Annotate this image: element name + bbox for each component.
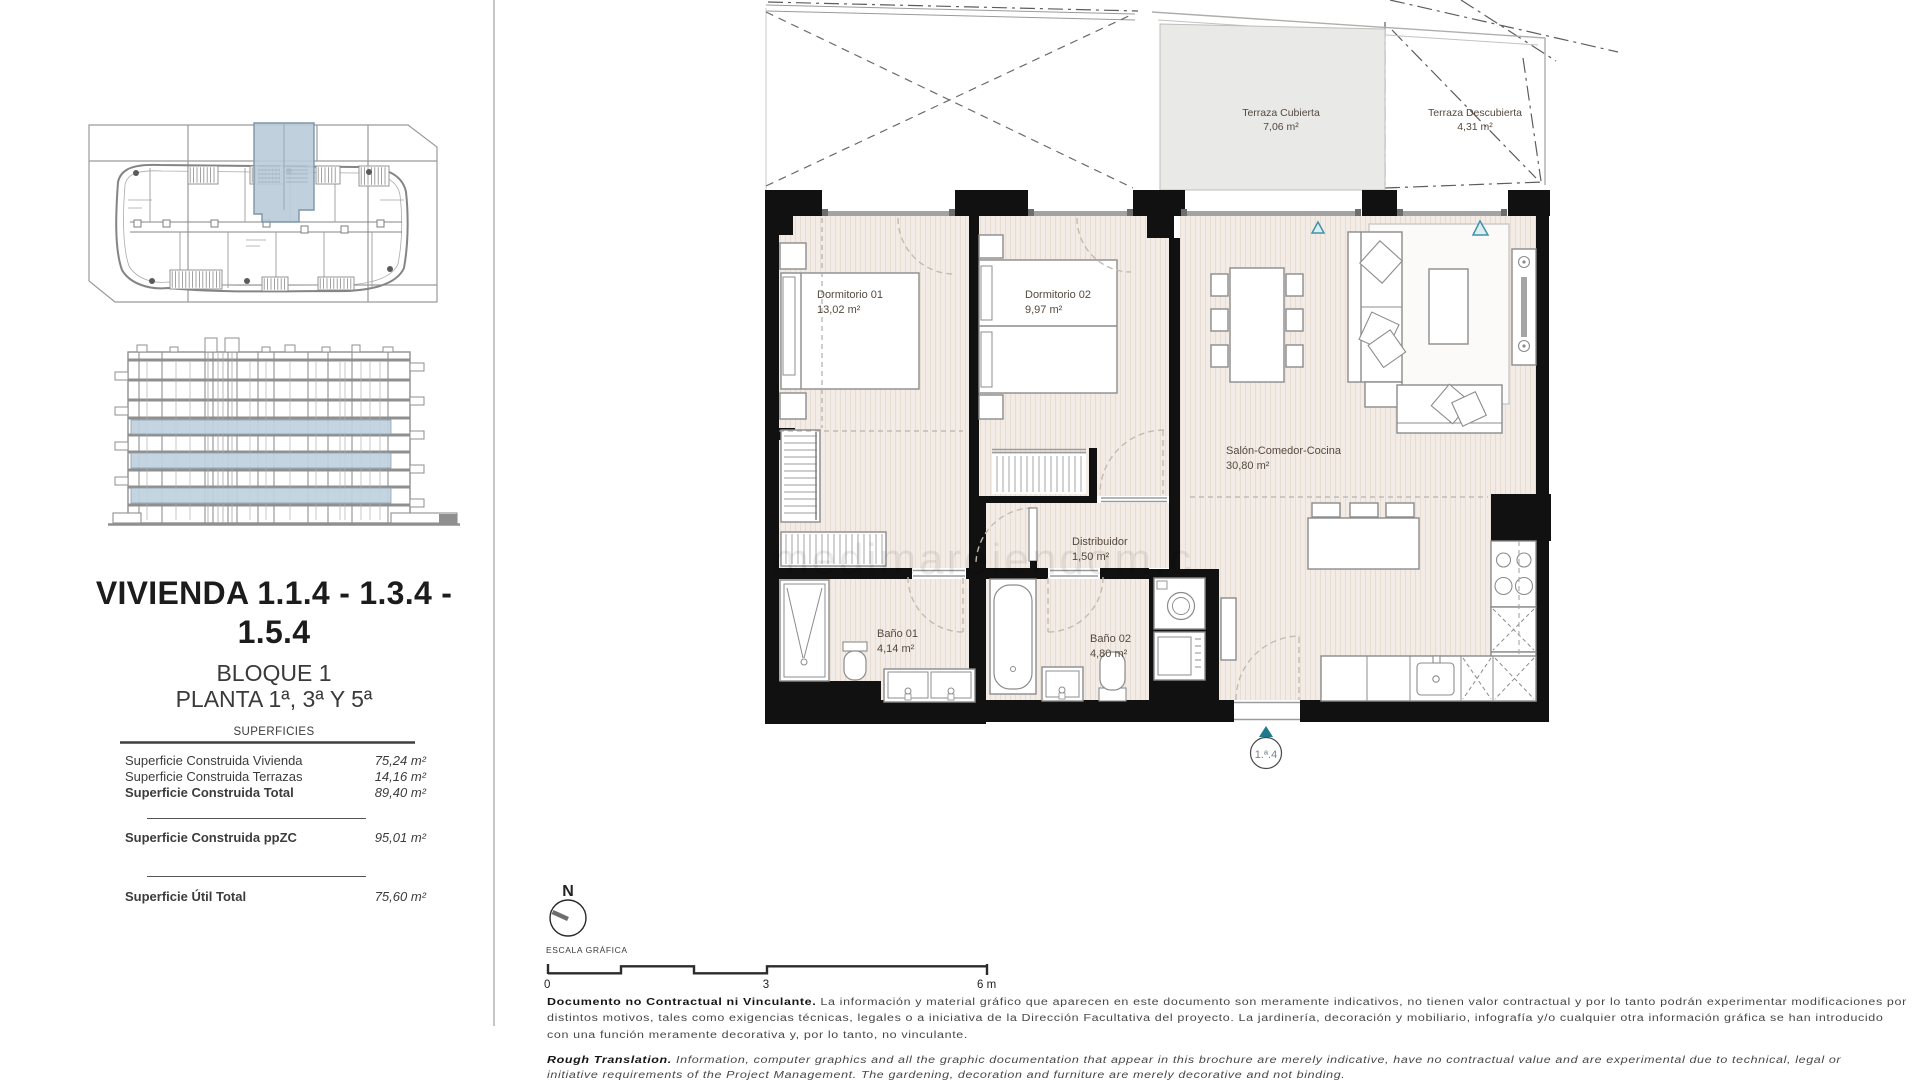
svg-text:BLOQUE 1: BLOQUE 1 (216, 660, 331, 686)
svg-text:Superficie Construida Terrazas: Superficie Construida Terrazas (125, 769, 303, 784)
svg-text:9,97 m²: 9,97 m² (1025, 304, 1063, 316)
svg-text:SUPERFICIES: SUPERFICIES (233, 726, 314, 738)
svg-text:Terraza Descubierta: Terraza Descubierta (1428, 107, 1522, 119)
svg-text:Superficie Construida ppZC: Superficie Construida ppZC (125, 830, 298, 845)
svg-text:4,14 m²: 4,14 m² (877, 643, 915, 655)
svg-text:7,06 m²: 7,06 m² (1263, 121, 1299, 133)
svg-text:ESCALA GRÁFICA: ESCALA GRÁFICA (546, 945, 628, 955)
svg-text:4,80 m²: 4,80 m² (1090, 648, 1128, 660)
svg-text:3: 3 (763, 979, 769, 991)
svg-text:30,80 m²: 30,80 m² (1226, 460, 1270, 472)
svg-text:Superficie Útil Total: Superficie Útil Total (125, 889, 246, 904)
svg-text:75,24 m²: 75,24 m² (375, 753, 427, 768)
svg-text:4,31 m²: 4,31 m² (1457, 121, 1493, 133)
svg-text:Baño 01: Baño 01 (877, 628, 918, 640)
svg-text:Dormitorio 02: Dormitorio 02 (1025, 289, 1091, 301)
svg-text:1.ª.4: 1.ª.4 (1255, 749, 1277, 761)
svg-text:Dormitorio 01: Dormitorio 01 (817, 289, 883, 301)
svg-text:95,01 m²: 95,01 m² (375, 830, 427, 845)
svg-text:N: N (562, 883, 574, 900)
svg-text:Superficie Construida Vivienda: Superficie Construida Vivienda (125, 753, 303, 768)
svg-text:1.5.4: 1.5.4 (238, 614, 311, 650)
svg-text:0: 0 (544, 979, 550, 991)
svg-text:VIVIENDA 1.1.4 - 1.3.4 -: VIVIENDA 1.1.4 - 1.3.4 - (96, 575, 452, 611)
svg-text:13,02 m²: 13,02 m² (817, 304, 861, 316)
svg-text:75,60 m²: 75,60 m² (375, 889, 427, 904)
svg-text:Superficie Construida Total: Superficie Construida Total (125, 785, 294, 800)
svg-text:14,16 m²: 14,16 m² (375, 769, 427, 784)
svg-text:medimareiendom.c: medimareiendom.c (772, 535, 1194, 584)
svg-text:Salón-Comedor-Cocina: Salón-Comedor-Cocina (1226, 445, 1342, 457)
svg-text:PLANTA 1ª, 3ª Y 5ª: PLANTA 1ª, 3ª Y 5ª (176, 686, 373, 712)
svg-text:Baño 02: Baño 02 (1090, 633, 1131, 645)
svg-text:89,40 m²: 89,40 m² (375, 785, 427, 800)
svg-text:6 m: 6 m (977, 979, 996, 991)
svg-text:Terraza Cubierta: Terraza Cubierta (1242, 107, 1320, 119)
